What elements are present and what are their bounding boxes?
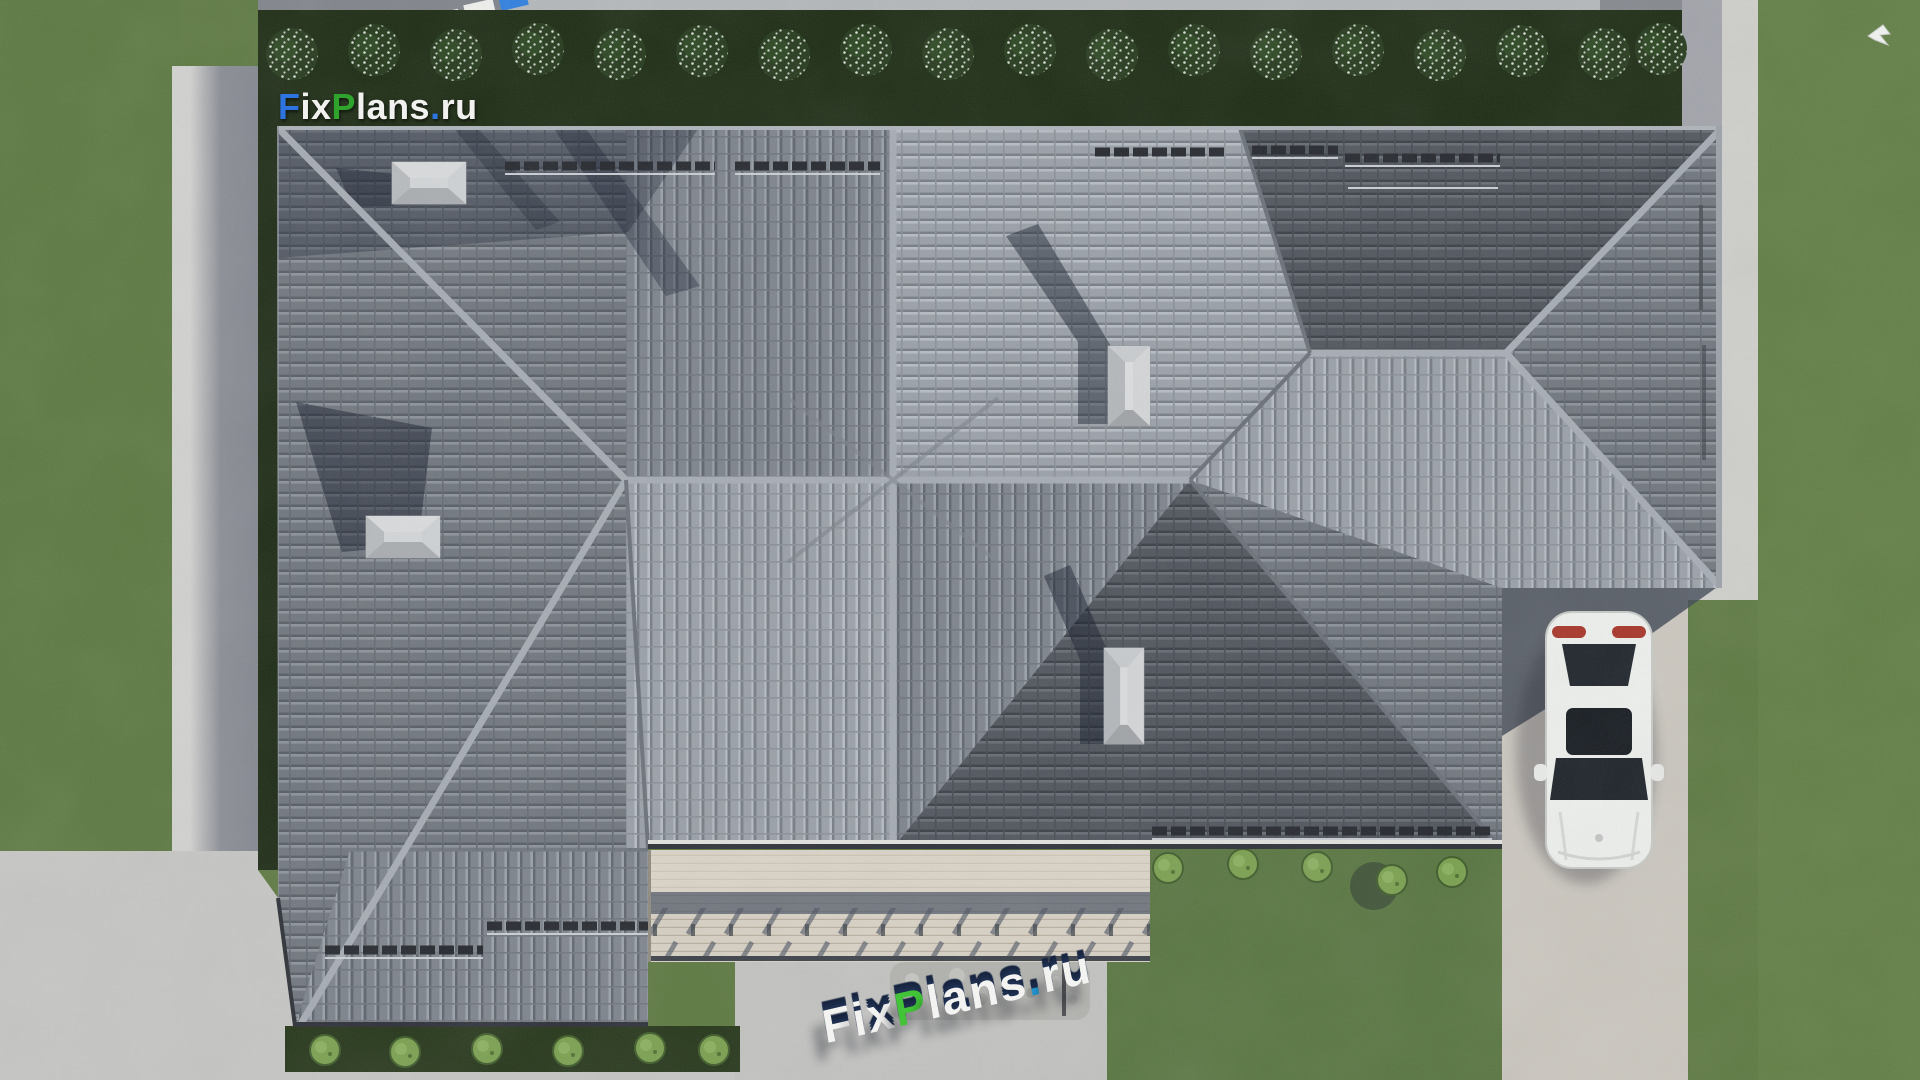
watermark-lans: lans [356, 86, 430, 127]
watermark-ru: ru [441, 86, 478, 127]
watermark-logo: FixPlans.ru [278, 86, 478, 128]
watermark-ix: ix [301, 86, 332, 127]
watermark-dot: . [430, 86, 441, 127]
watermark-p: P [332, 86, 357, 127]
aerial-render-scene: FixPlans.ru FixPlans.ru [0, 0, 1920, 1080]
watermark-f: F [278, 86, 301, 127]
scene-graphics [0, 0, 1920, 1080]
grain-overlay [0, 0, 1920, 1080]
logo3d-ru: ru [1037, 939, 1096, 1003]
